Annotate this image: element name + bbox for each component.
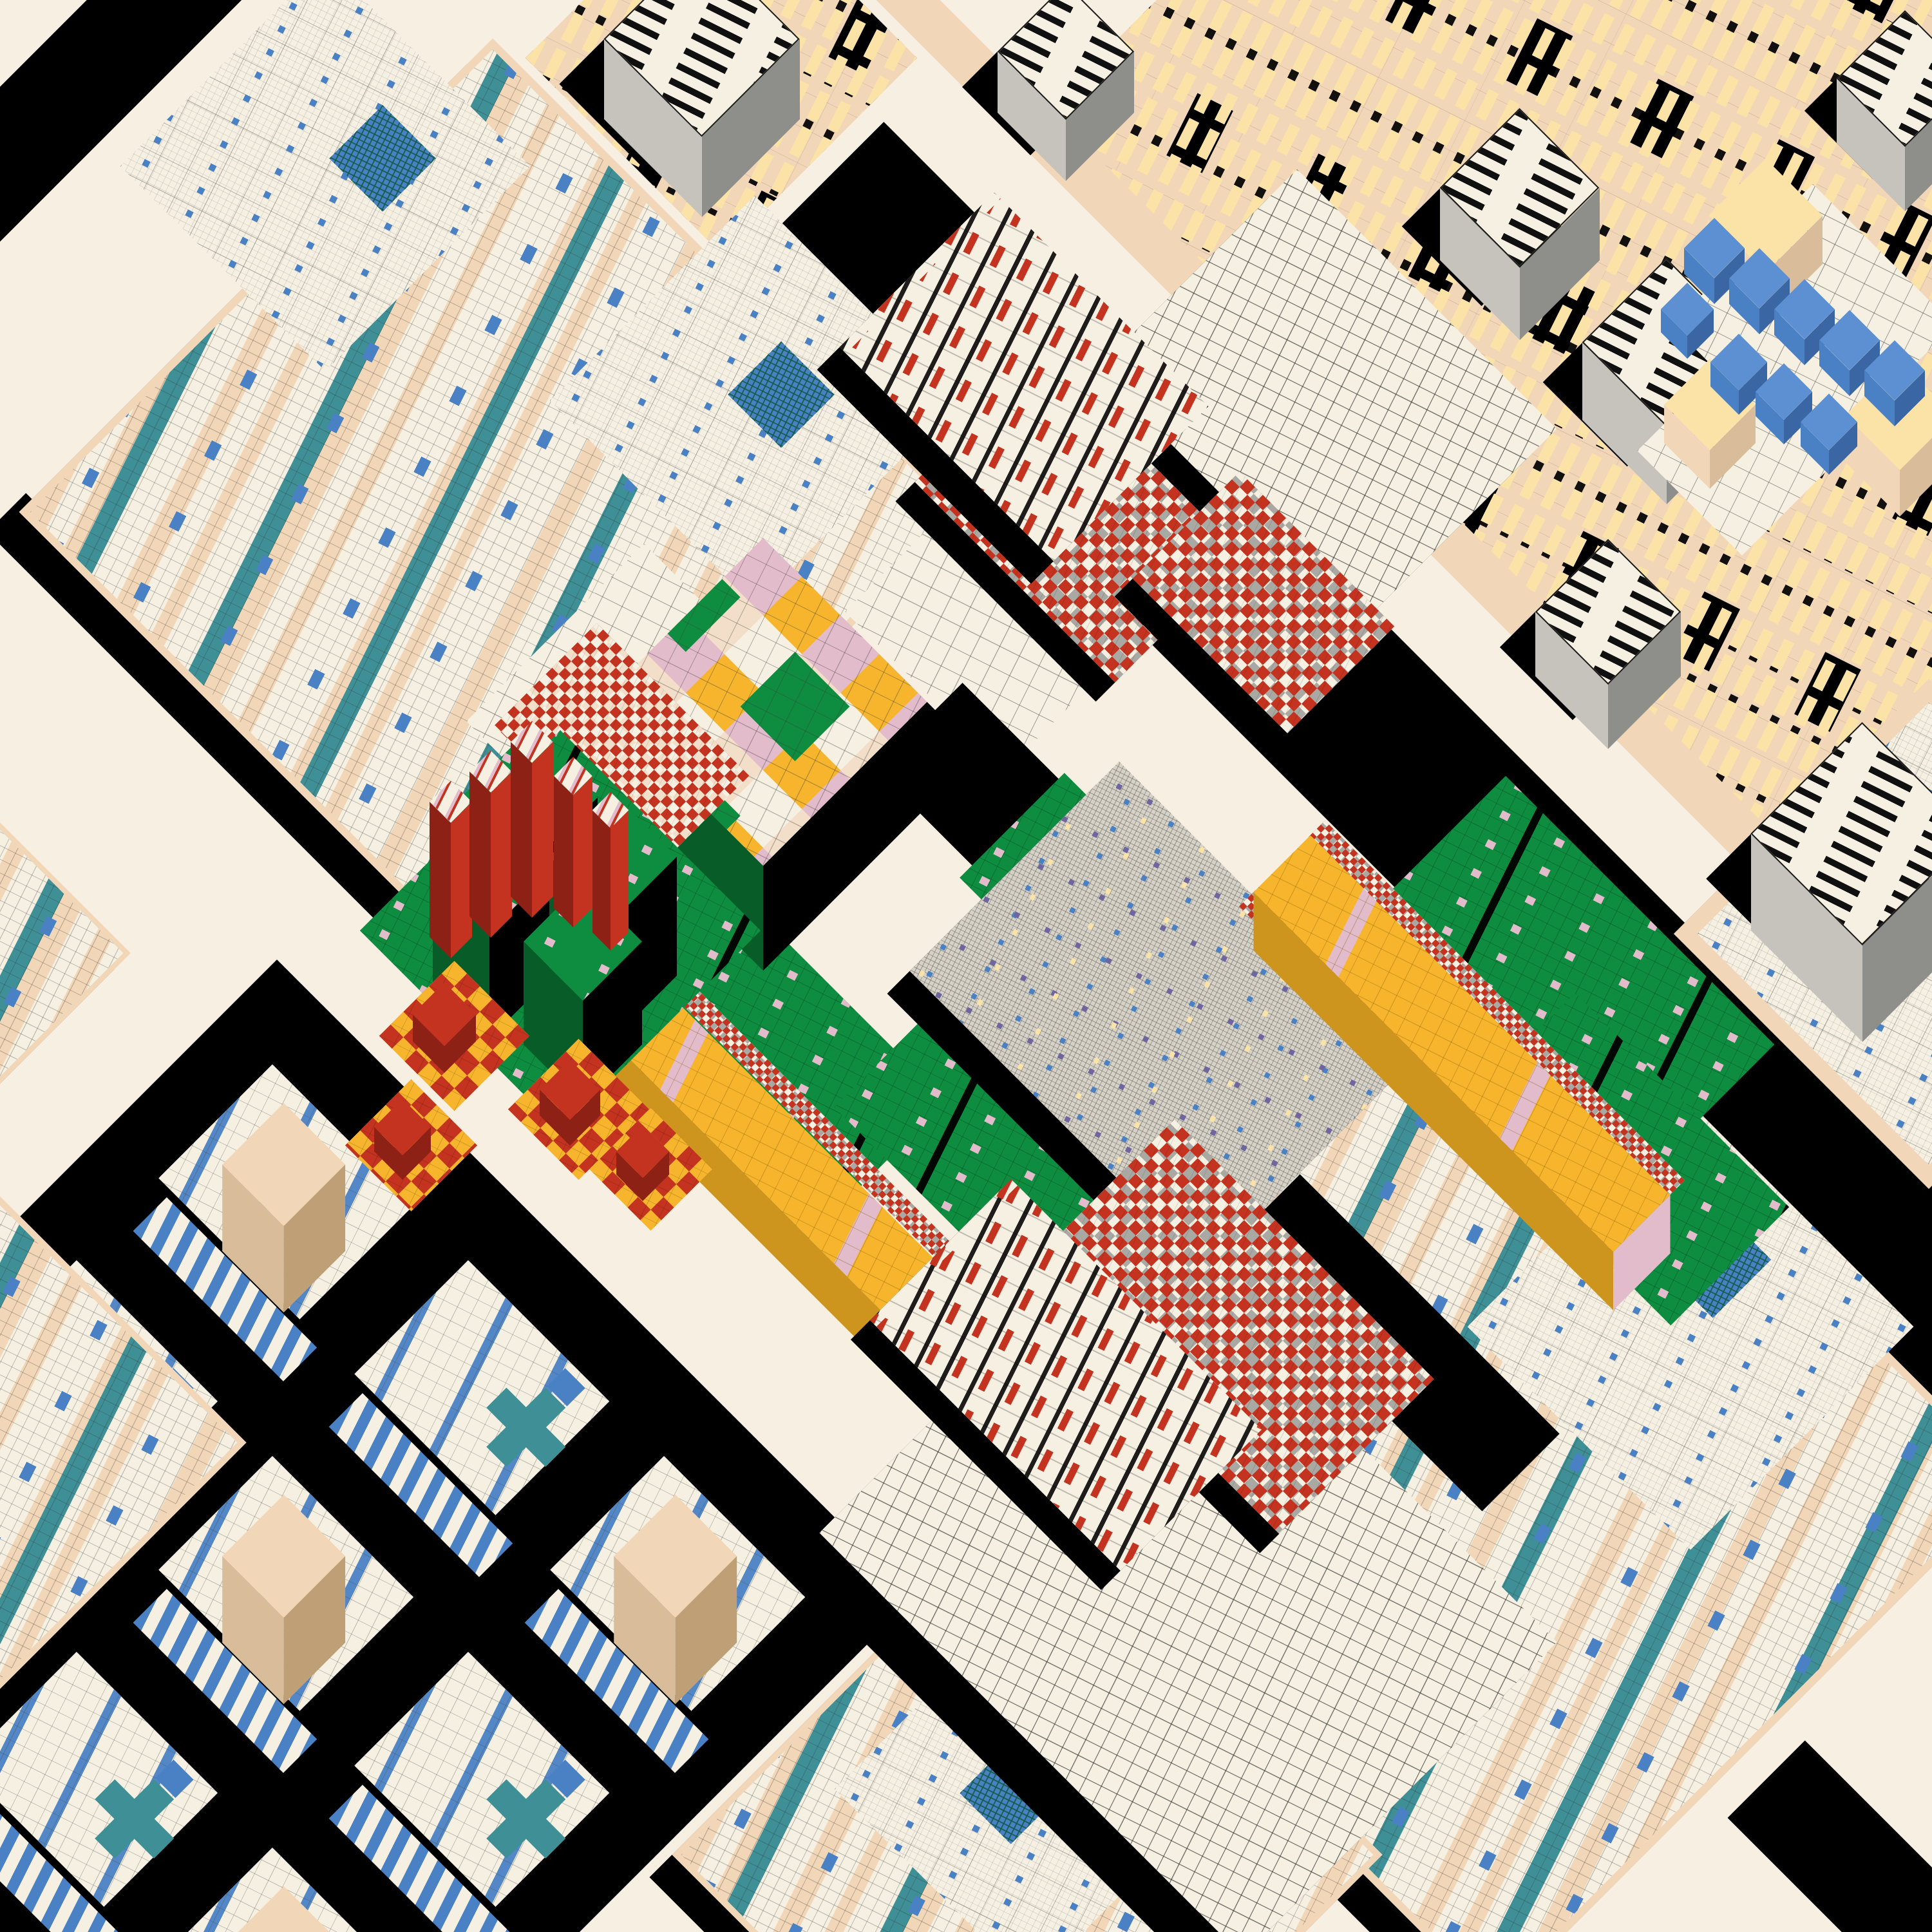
red-box bbox=[540, 1059, 600, 1145]
side-face-right bbox=[491, 772, 512, 938]
district-slab-west-small bbox=[0, 771, 131, 1135]
slab-building bbox=[1751, 723, 1932, 1042]
slab-building bbox=[1440, 108, 1599, 339]
slab-building bbox=[1535, 539, 1681, 749]
side-face-right bbox=[532, 742, 553, 918]
red-box bbox=[413, 983, 477, 1074]
blue-box bbox=[1801, 393, 1857, 475]
road-black-bottom-right-corner bbox=[1728, 1741, 1932, 1932]
side-face-right bbox=[611, 810, 629, 951]
red-box bbox=[616, 1125, 669, 1201]
side-face-southwest bbox=[763, 702, 927, 971]
slab-building bbox=[1837, 10, 1932, 211]
side-face-right bbox=[451, 802, 472, 958]
red-box bbox=[374, 1099, 431, 1180]
side-face-left bbox=[469, 772, 491, 938]
slab-building bbox=[998, 0, 1134, 181]
red-tower bbox=[469, 750, 511, 937]
side-face-left bbox=[592, 810, 611, 951]
side-face-right bbox=[573, 776, 592, 927]
overlay-bluepairs-texture bbox=[0, 778, 124, 1128]
red-tower bbox=[511, 721, 553, 917]
isometric-city-illustration: Axonometric generative city illustration bbox=[0, 0, 1932, 1932]
red-tower bbox=[430, 781, 471, 958]
red-tower bbox=[554, 757, 592, 927]
side-face-left bbox=[554, 776, 573, 927]
blue-box bbox=[1864, 340, 1924, 426]
slab-building bbox=[604, 0, 800, 217]
blue-box bbox=[1661, 283, 1714, 359]
side-face-left bbox=[430, 802, 451, 958]
red-tower bbox=[592, 792, 629, 951]
side-face-left bbox=[511, 742, 532, 918]
